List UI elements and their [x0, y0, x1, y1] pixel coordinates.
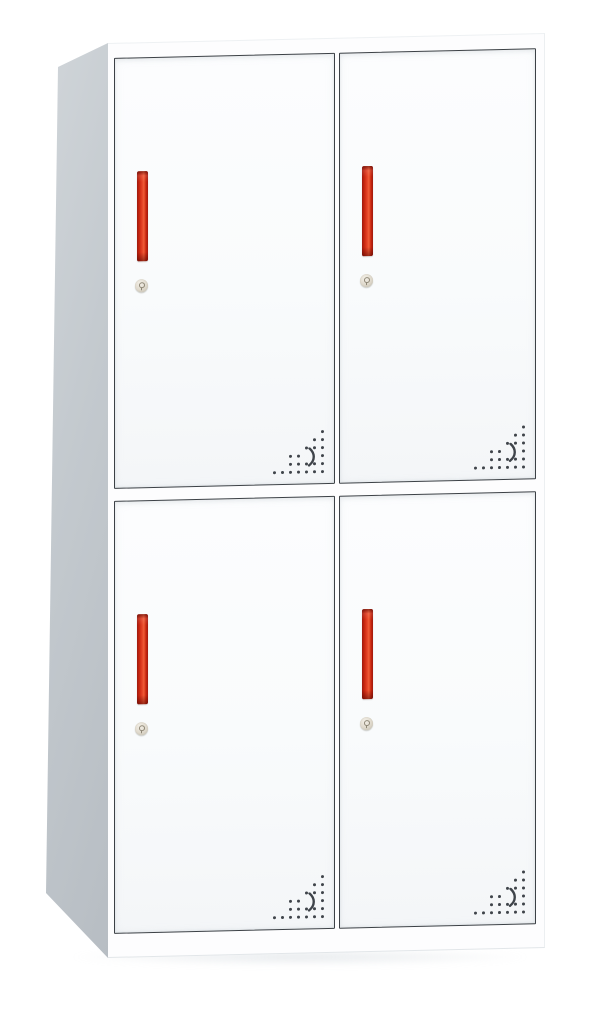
- locker-door-bottom-left: [114, 496, 335, 934]
- vent-hole: [313, 883, 316, 886]
- vent-hole: [522, 425, 525, 428]
- vent-hole: [313, 438, 316, 441]
- vent-hole: [289, 471, 292, 474]
- vent-hole: [482, 911, 485, 914]
- vent-hole: [514, 466, 517, 469]
- vent-hole: [281, 916, 284, 919]
- vent-hole: [490, 903, 493, 906]
- vent-hole: [305, 915, 308, 918]
- vent-hole: [297, 463, 300, 466]
- door-row-top: [114, 48, 535, 489]
- locker-door-bottom-right: [339, 491, 536, 929]
- vent-hole: [506, 466, 509, 469]
- vent-hole: [522, 433, 525, 436]
- keyhole-lock: [135, 722, 148, 735]
- vent-hole: [514, 879, 517, 882]
- vent-hole: [498, 466, 501, 469]
- locker-door-top-right: [339, 48, 536, 484]
- vent-hole: [281, 471, 284, 474]
- vent-hole: [297, 908, 300, 911]
- vent-hole: [273, 916, 276, 919]
- vent-hole: [522, 902, 525, 905]
- vent-hole: [522, 910, 525, 913]
- locker-door-top-left: [114, 53, 335, 489]
- vent-hole: [297, 916, 300, 919]
- vent-hole: [506, 911, 509, 914]
- vent-hole: [273, 471, 276, 474]
- vent-hole: [289, 455, 292, 458]
- vent-hole: [490, 450, 493, 453]
- vent-hole: [297, 471, 300, 474]
- vent-hole: [289, 916, 292, 919]
- vent-hole: [321, 883, 324, 886]
- ventilation-holes: [474, 425, 525, 469]
- vent-hole: [321, 915, 324, 918]
- vent-hole: [514, 434, 517, 437]
- keyhole-lock: [360, 717, 373, 730]
- vent-hole: [482, 466, 485, 469]
- vent-hole: [490, 895, 493, 898]
- ventilation-holes: [273, 875, 324, 919]
- ventilation-holes: [273, 430, 324, 474]
- vent-hole: [522, 894, 525, 897]
- cabinet-side-panel: [46, 43, 108, 958]
- vent-hole: [522, 441, 525, 444]
- vent-hole: [321, 875, 324, 878]
- door-handle: [362, 166, 373, 256]
- vent-hole: [498, 458, 501, 461]
- vent-hole: [313, 470, 316, 473]
- vent-hole: [289, 908, 292, 911]
- vent-hole: [321, 454, 324, 457]
- vent-hole: [522, 465, 525, 468]
- product-photo: [0, 0, 605, 1009]
- vent-hole: [498, 450, 501, 453]
- ventilation-holes: [474, 870, 525, 914]
- vent-hole: [297, 900, 300, 903]
- vent-hole: [514, 911, 517, 914]
- vent-hole: [522, 878, 525, 881]
- vent-hole: [498, 895, 501, 898]
- vent-hole: [522, 449, 525, 452]
- vent-hole: [321, 438, 324, 441]
- vent-hole: [289, 463, 292, 466]
- vent-hole: [313, 915, 316, 918]
- vent-hole: [321, 446, 324, 449]
- vent-hole: [522, 870, 525, 873]
- vent-hole: [490, 911, 493, 914]
- vent-hole: [490, 458, 493, 461]
- vent-hole: [305, 470, 308, 473]
- vent-hole: [474, 912, 477, 915]
- vent-hole: [321, 891, 324, 894]
- vent-hole: [297, 455, 300, 458]
- vent-hole: [522, 457, 525, 460]
- door-row-bottom: [114, 491, 535, 934]
- door-handle: [137, 171, 148, 261]
- door-handle: [137, 614, 148, 704]
- vent-hole: [321, 430, 324, 433]
- keyhole-lock: [135, 279, 148, 292]
- vent-hole: [498, 903, 501, 906]
- vent-hole: [289, 900, 292, 903]
- vent-hole: [522, 886, 525, 889]
- vent-hole: [321, 462, 324, 465]
- vent-hole: [490, 466, 493, 469]
- vent-hole: [474, 467, 477, 470]
- vent-hole: [321, 907, 324, 910]
- cabinet-front: [108, 33, 545, 958]
- door-handle: [362, 609, 373, 699]
- vent-hole: [321, 899, 324, 902]
- vent-hole: [321, 470, 324, 473]
- keyhole-lock: [360, 274, 373, 287]
- vent-hole: [498, 911, 501, 914]
